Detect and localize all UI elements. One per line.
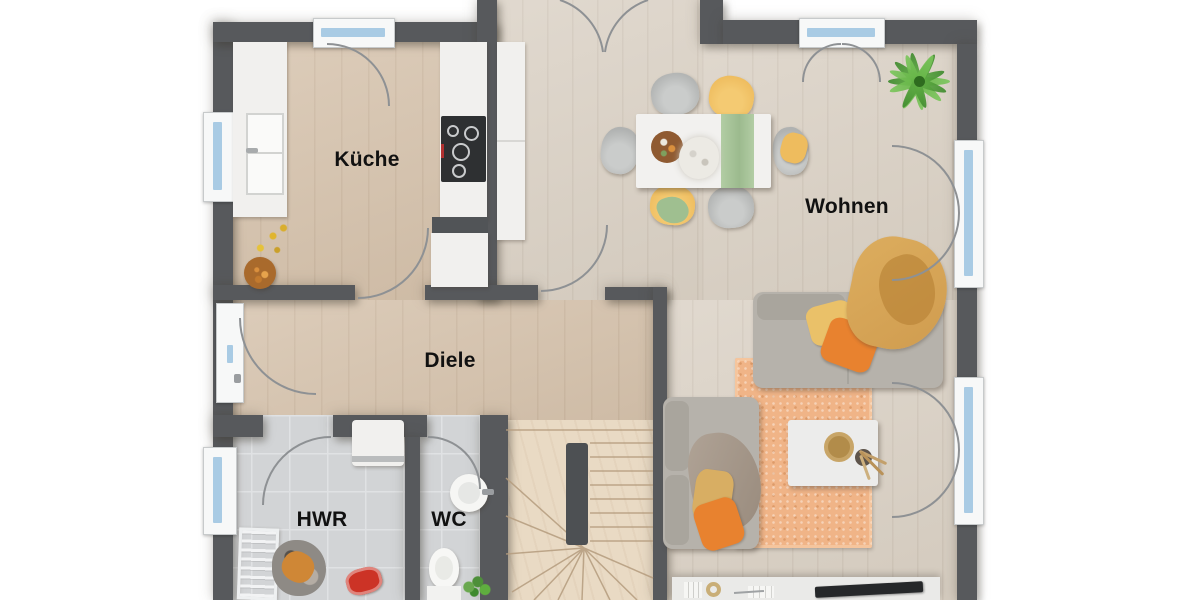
cooktop-burner-icon	[452, 143, 470, 161]
room-label-diele: Diele	[424, 349, 475, 373]
kitchen-top-window-glass	[321, 28, 385, 37]
sideboard-ring-decor	[706, 582, 721, 597]
branch-decor	[252, 220, 294, 260]
coffee-table-tray	[824, 432, 854, 462]
wall-kitchen-bottom-right	[425, 285, 538, 300]
table-runner	[721, 114, 754, 188]
living-top-window-glass	[807, 28, 875, 37]
fruit-bowl	[244, 257, 276, 289]
sofa-vertical-back	[665, 401, 689, 471]
sideboard-books	[684, 582, 702, 598]
fridge-top-panel	[432, 217, 488, 233]
room-label-kueche: Küche	[334, 148, 399, 172]
table-flowers-decor	[679, 137, 719, 179]
sofa-vertical-back	[665, 475, 689, 545]
cooktop-burner-icon	[464, 126, 479, 141]
wall-hwr-wc-divider	[405, 437, 420, 600]
wall-wc-right	[480, 415, 508, 600]
palm-plant	[886, 44, 952, 118]
wc-faucet-icon	[482, 489, 494, 495]
fridge	[431, 233, 488, 287]
wall-kitchen-bottom-left	[213, 285, 355, 300]
kitchen-left-window-glass	[213, 122, 222, 190]
toilet-tank	[427, 586, 461, 600]
wc-sink-basin	[458, 482, 480, 504]
cooktop-knob	[441, 144, 444, 158]
entry-door-glass	[227, 345, 233, 363]
floorplan: Küche Wohnen Diele HWR WC	[0, 0, 1200, 600]
cooktop-burner-icon	[452, 164, 466, 178]
wc-plant	[458, 574, 494, 600]
toilet-seat	[435, 556, 453, 580]
room-label-wc: WC	[431, 508, 466, 532]
wall-top-cap	[700, 0, 723, 44]
washing-machine-panel	[352, 456, 404, 462]
kitchen-sink	[246, 113, 284, 195]
wall-hwr-top-left	[213, 415, 263, 437]
french-door-lower-glass	[964, 387, 973, 513]
tall-cabinet-divider	[497, 140, 525, 142]
kitchen-faucet-icon	[246, 148, 258, 153]
floor-stairwell	[506, 420, 653, 600]
room-label-hwr: HWR	[297, 508, 348, 532]
hwr-left-window-glass	[213, 457, 222, 523]
cooktop-burner-icon	[447, 125, 459, 137]
entry-door-handle	[234, 374, 241, 383]
room-label-wohnen: Wohnen	[805, 195, 889, 219]
french-door-upper-glass	[964, 150, 973, 276]
